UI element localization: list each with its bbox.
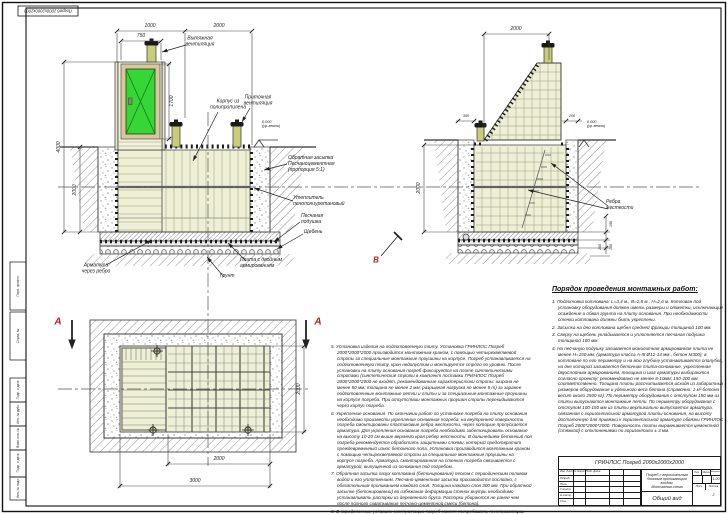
front-gravel-layer xyxy=(100,246,280,254)
installation-notes-1-4: 1. Подготовка котлована: L=3,4 м., B=2,6… xyxy=(552,299,724,436)
margin-label: Взам. инв. № xyxy=(16,428,20,448)
dim-front-4000: 4000 xyxy=(57,141,63,152)
note-item: 5. Установка изделия на подготовленную п… xyxy=(331,344,532,409)
installation-notes-title: Порядок проведения монтажных работ: xyxy=(552,286,724,293)
side-body xyxy=(474,145,566,232)
dim-side-100b: 100 xyxy=(609,244,613,250)
dim-side-100a: 100 xyxy=(598,244,602,250)
label-exhaust-vent: Вытяжная вентиляция xyxy=(186,36,215,48)
label-stiffening-ribs: Ребра жесткости xyxy=(606,200,633,212)
dim-front-750: 750 xyxy=(137,34,145,40)
titleblock-view-name: Общий вид xyxy=(641,492,692,505)
title-block: ГРИНЛОС Погреб 2000х2000х2000 Изм. Лист … xyxy=(558,456,721,506)
side-view xyxy=(424,41,616,265)
margin-label: Перв. примен. xyxy=(16,275,20,296)
titleblock-meta-grid: Изм. Лист № докум. Подп. Дата Разраб. Пр… xyxy=(559,470,641,505)
titleblock-description: Погреб с вертикальным боковым проникающи… xyxy=(641,470,692,492)
dim-front-1000: 1000 xyxy=(144,24,155,30)
side-drain-pipe xyxy=(463,234,469,240)
side-ground-hatch-left xyxy=(434,140,458,232)
dim-side-300: 300 xyxy=(463,114,469,118)
side-ground-hatch-right xyxy=(578,140,606,232)
dim-front-2000-depth: 2000 xyxy=(73,184,79,195)
margin-label: Подп. и дата xyxy=(16,381,20,400)
front-shaft-post-right xyxy=(162,62,165,150)
margin-label: Инв. № дубл. xyxy=(16,404,20,424)
label-elevation-side: 0.000 (ур.земли) xyxy=(587,120,605,129)
titleblock-sheets-value: 2 xyxy=(706,490,720,500)
label-insulation: Утеплитель пенополиуретановый xyxy=(293,196,345,208)
dim-front-1700: 1700 xyxy=(170,95,176,106)
titleblock-sheet-header: Лист xyxy=(693,484,706,490)
note-item: 2. Засыпка на дно котлована щебня средне… xyxy=(552,325,724,331)
front-supply-pipes xyxy=(170,120,244,148)
label-soil: Грунт xyxy=(220,274,235,280)
front-elevation-mark xyxy=(254,140,278,147)
dim-front-2000-top: 2000 xyxy=(213,24,224,30)
label-backfill: Обратная засыпка Песчаноцементная (пропо… xyxy=(288,156,335,173)
dim-plan-2000-right: 2000 xyxy=(297,383,303,394)
plan-view xyxy=(90,320,296,452)
margin-label: Инв. № подл. xyxy=(16,478,20,498)
dim-plan-2000-bottom: 2000 xyxy=(213,457,224,463)
side-soil-hatch xyxy=(446,253,590,264)
section-mark-a-right: А xyxy=(314,317,321,328)
label-double-reinforced-plate: Плита с двойным армированием xyxy=(240,258,282,270)
drawing-sheet: Погреб 2000х2000х2000 Перв. примен. Спра… xyxy=(0,0,728,514)
front-shaft-post-left xyxy=(115,62,118,150)
margin-label: Справ. № xyxy=(16,329,20,343)
note-item: 7. Обратная засыпка пазух котлована (бет… xyxy=(331,471,532,506)
note-item: 6. Укрепление основания. По окончании ра… xyxy=(331,411,532,470)
dim-side-150: 150 xyxy=(609,221,613,227)
label-supply-vent: Приточная вентиляция xyxy=(244,95,273,107)
titleblock-product: ГРИНЛОС Погреб 2000х2000х2000 xyxy=(559,457,720,470)
margin-label: Подп. и дата xyxy=(16,454,20,473)
note-item: 1. Подготовка котлована: L=3,4 м., B=2,6… xyxy=(552,299,724,323)
installation-notes-5-8: 5. Установка изделия на подготовленную п… xyxy=(331,344,532,514)
note-item: 8. В определенных условиях эксплуатации … xyxy=(331,509,532,514)
front-base-plate xyxy=(100,232,280,241)
label-rebar: Арматура через ребро xyxy=(82,263,111,275)
dim-side-2000-left: 2000 xyxy=(417,182,423,193)
front-door-handle xyxy=(129,98,133,105)
titleblock-scale-value: 1:20 xyxy=(711,476,720,484)
side-supply-pipe xyxy=(475,121,487,142)
titleblock-role: Утв. xyxy=(559,499,641,505)
dim-plan-3000-bottom: 3000 xyxy=(189,479,200,485)
side-gravel-layer xyxy=(458,245,578,253)
label-polypropylene-body: Корпус из полипропилена xyxy=(210,99,246,111)
dim-side-200: 200 xyxy=(569,114,575,118)
corner-stamp: Погреб 2000х2000х2000 xyxy=(24,9,72,14)
side-entrance-slope xyxy=(484,63,561,140)
label-gravel: Щебень xyxy=(304,230,322,236)
dim-side-2000-top: 2000 xyxy=(510,27,521,33)
section-mark-b: В xyxy=(373,256,379,265)
note-item: 3. Сверху на щебень укладывается и уплот… xyxy=(552,332,724,344)
note-item: 4. На песчаную подушку заливается моноли… xyxy=(552,346,724,434)
label-elevation-front: 0.000 (ур.земли) xyxy=(262,120,280,129)
titleblock-scale-grid: Лит. Масса Масштаб 1:20 Лист Листов 2 xyxy=(692,470,720,505)
section-mark-a-left: А xyxy=(54,317,61,328)
front-exhaust-pipe xyxy=(145,39,159,63)
label-sand-cushion: Песчаная подушка xyxy=(301,214,323,226)
side-exhaust-pipe xyxy=(542,41,555,64)
